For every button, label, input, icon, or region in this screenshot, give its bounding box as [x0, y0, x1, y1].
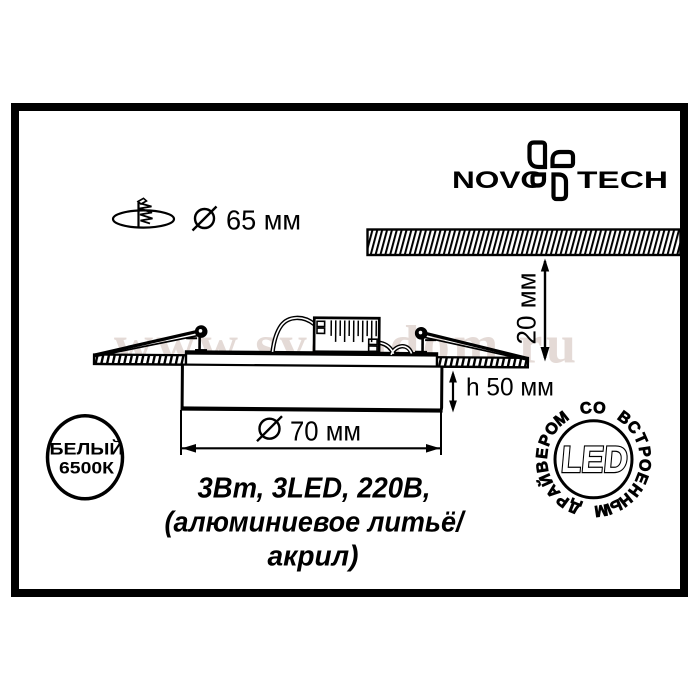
svg-text:3Вт, 3LED, 220В,: 3Вт, 3LED, 220В, [198, 473, 431, 505]
svg-text:(алюминиевое литьё/: (алюминиевое литьё/ [165, 507, 467, 539]
svg-text:акрил): акрил) [268, 541, 359, 573]
svg-text:О: О [592, 399, 606, 417]
svg-text:В: В [534, 460, 553, 474]
svg-text:С: С [579, 400, 593, 419]
svg-text:Е: Е [534, 447, 552, 460]
svg-text:TECH: TECH [577, 167, 668, 194]
svg-text:БЕЛЫЙ: БЕЛЫЙ [50, 440, 124, 459]
svg-text:70 мм: 70 мм [290, 416, 361, 447]
svg-text:h 50 мм: h 50 мм [466, 374, 554, 402]
svg-text:65 мм: 65 мм [226, 205, 301, 236]
svg-text:LED: LED [559, 439, 629, 480]
svg-text:6500К: 6500К [59, 459, 115, 478]
svg-text:Р: Р [635, 445, 653, 458]
svg-text:М: М [593, 500, 609, 519]
